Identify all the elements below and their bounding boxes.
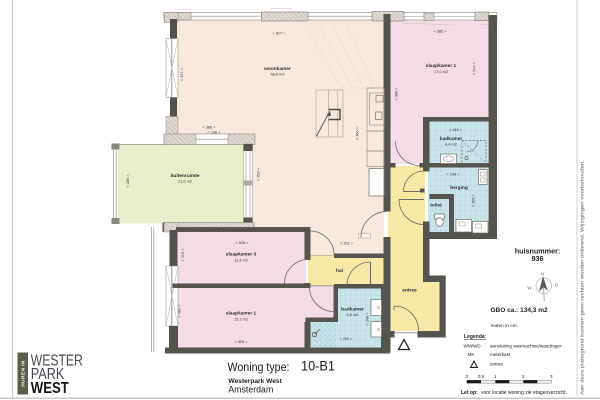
svg-text:Legenda:: Legenda: [464,334,487,340]
svg-text:< 248 >: < 248 > [447,173,461,177]
svg-text:< 526 >: < 526 > [236,241,250,245]
svg-text:WEST: WEST [31,380,69,397]
svg-text:Let op:: Let op: [461,390,478,396]
svg-text:toilet: toilet [430,203,442,209]
svg-text:maten in cm.: maten in cm. [491,323,518,329]
svg-text:< 219 >: < 219 > [181,248,185,262]
svg-text:10-B1: 10-B1 [301,357,335,373]
svg-text:< 386 >: < 386 > [203,126,217,130]
svg-text:meterkast: meterkast [490,352,511,357]
svg-text:Woning type:: Woning type: [228,360,290,374]
svg-text:< 817 >: < 817 > [273,32,287,36]
svg-text:aansluiting wasmachine/wasdrog: aansluiting wasmachine/wasdroger [490,344,562,349]
svg-text:WM/WD: WM/WD [464,344,482,349]
svg-text:hal: hal [336,268,343,274]
svg-text:GBO ca.: 134,3 m2: GBO ca.: 134,3 m2 [491,307,548,314]
svg-text:berging: berging [450,185,468,191]
svg-text:17,0 m2: 17,0 m2 [434,69,448,74]
svg-text:< 526 >: < 526 > [235,340,249,344]
svg-text:< 460 >: < 460 > [356,126,360,140]
svg-text:entree: entree [490,362,503,367]
svg-text:entree: entree [402,288,417,294]
svg-text:< 248 >: < 248 > [449,128,463,132]
svg-text:4,4 m2: 4,4 m2 [445,142,457,147]
svg-text:58,6 m2: 58,6 m2 [270,72,284,77]
svg-text:< 382 >: < 382 > [434,30,448,34]
svg-text:5,5 m2: 5,5 m2 [347,312,359,317]
svg-text:0,5: 0,5 [478,374,485,379]
svg-text:15,3 m2: 15,3 m2 [234,317,248,322]
svg-text:< 282 >: < 282 > [178,304,182,318]
svg-text:< 447 >: < 447 > [180,67,184,81]
svg-text:Aan deze plattegrond kunnen ge: Aan deze plattegrond kunnen geen rechten… [580,160,585,395]
svg-text:936: 936 [532,254,544,263]
svg-text:N: N [541,272,544,277]
svg-text:< 291 >: < 291 > [340,242,354,246]
svg-text:< 368 >: < 368 > [395,87,399,101]
svg-text:< 265 >: < 265 > [472,193,476,207]
svg-text:O: O [555,283,559,288]
svg-text:voor locatie woning zie etageo: voor locatie woning zie etageoverzicht. [481,390,567,396]
svg-text:Amsterdam: Amsterdam [228,385,273,395]
svg-text:11,4 m2: 11,4 m2 [234,258,248,263]
svg-text:HUREN IN: HUREN IN [21,360,27,387]
svg-text:< 353 >: < 353 > [257,167,261,181]
svg-text:< 248 >: < 248 > [366,312,370,326]
svg-text:21,6 m2: 21,6 m2 [178,179,192,184]
svg-text:< 280 >: < 280 > [126,174,130,188]
svg-text:< 200 >: < 200 > [340,337,354,341]
svg-text:MK: MK [468,352,476,357]
svg-text:< 146 >: < 146 > [208,131,222,135]
svg-text:< 574 >: < 574 > [473,61,477,75]
svg-text:< 182 >: < 182 > [427,137,431,151]
